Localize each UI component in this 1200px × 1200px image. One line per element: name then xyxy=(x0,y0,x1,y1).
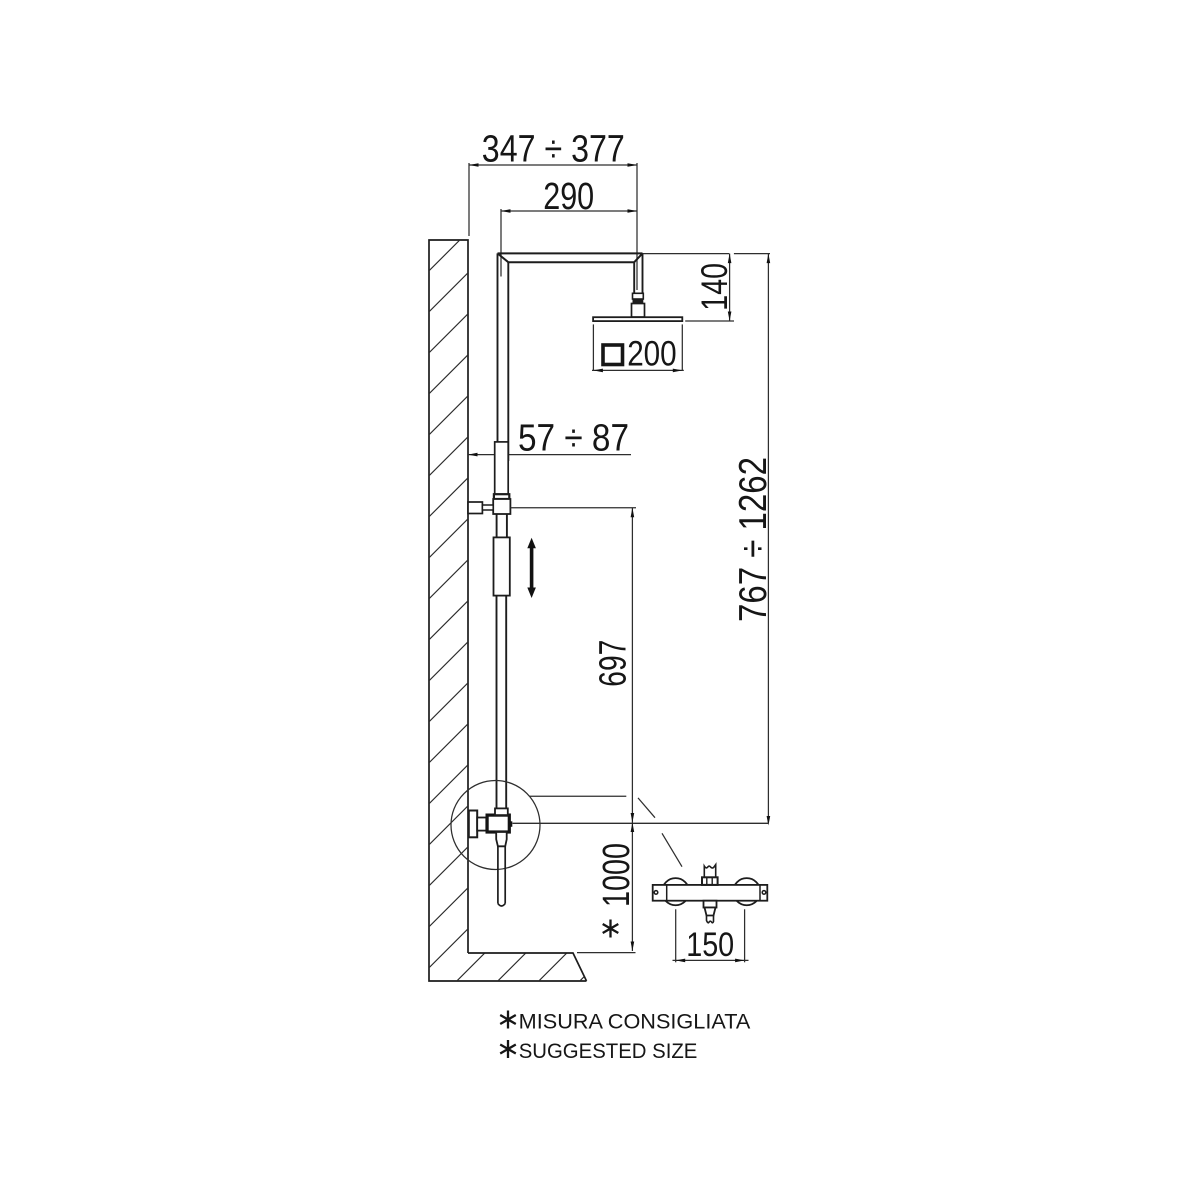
svg-text:200: 200 xyxy=(627,335,677,374)
svg-text:140: 140 xyxy=(694,263,735,311)
svg-text:MISURA CONSIGLIATA: MISURA CONSIGLIATA xyxy=(519,1010,751,1034)
svg-text:697: 697 xyxy=(593,640,635,687)
svg-text:290: 290 xyxy=(543,176,594,218)
svg-text:SUGGESTED SIZE: SUGGESTED SIZE xyxy=(519,1039,698,1063)
svg-text:347 ÷ 377: 347 ÷ 377 xyxy=(482,129,625,171)
svg-text:57 ÷ 87: 57 ÷ 87 xyxy=(518,418,629,460)
svg-text:1000: 1000 xyxy=(596,843,638,907)
svg-text:767 ÷ 1262: 767 ÷ 1262 xyxy=(732,457,775,622)
svg-text:150: 150 xyxy=(686,926,734,964)
